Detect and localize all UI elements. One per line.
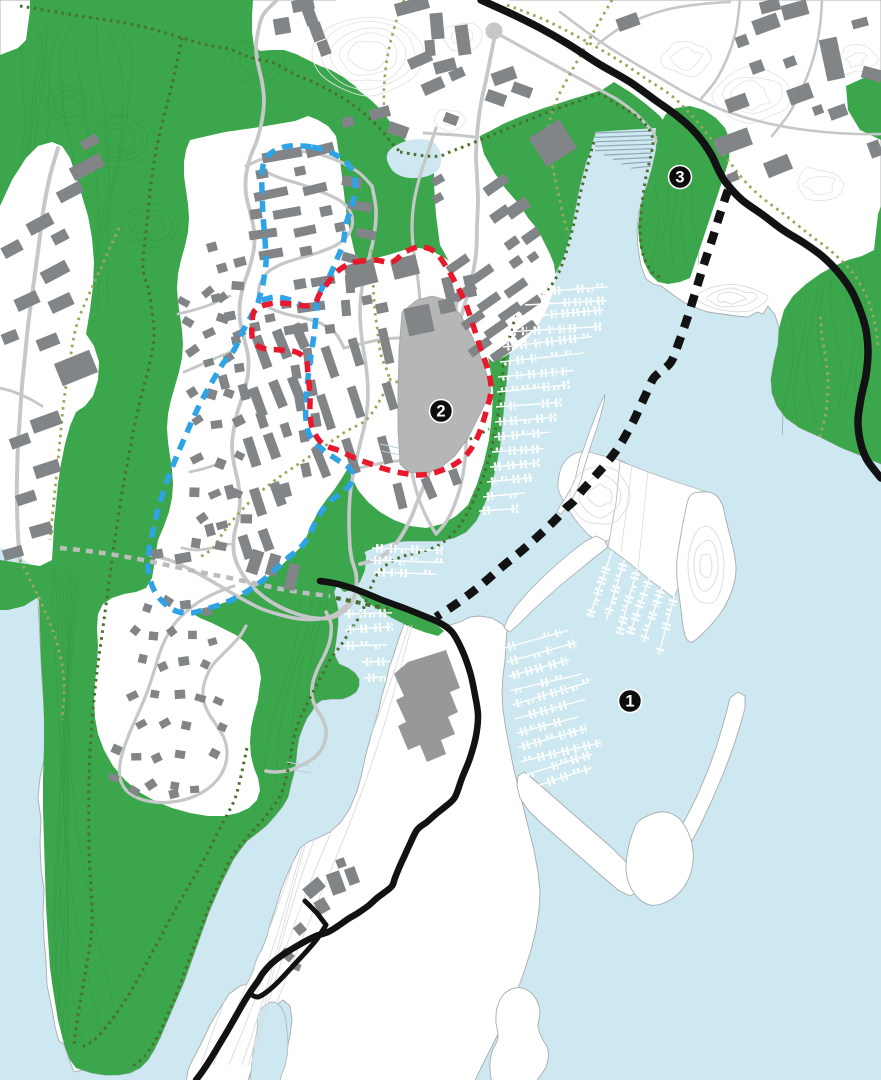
svg-text:3: 3	[675, 169, 684, 187]
svg-text:1: 1	[625, 693, 634, 711]
svg-text:2: 2	[436, 403, 445, 421]
